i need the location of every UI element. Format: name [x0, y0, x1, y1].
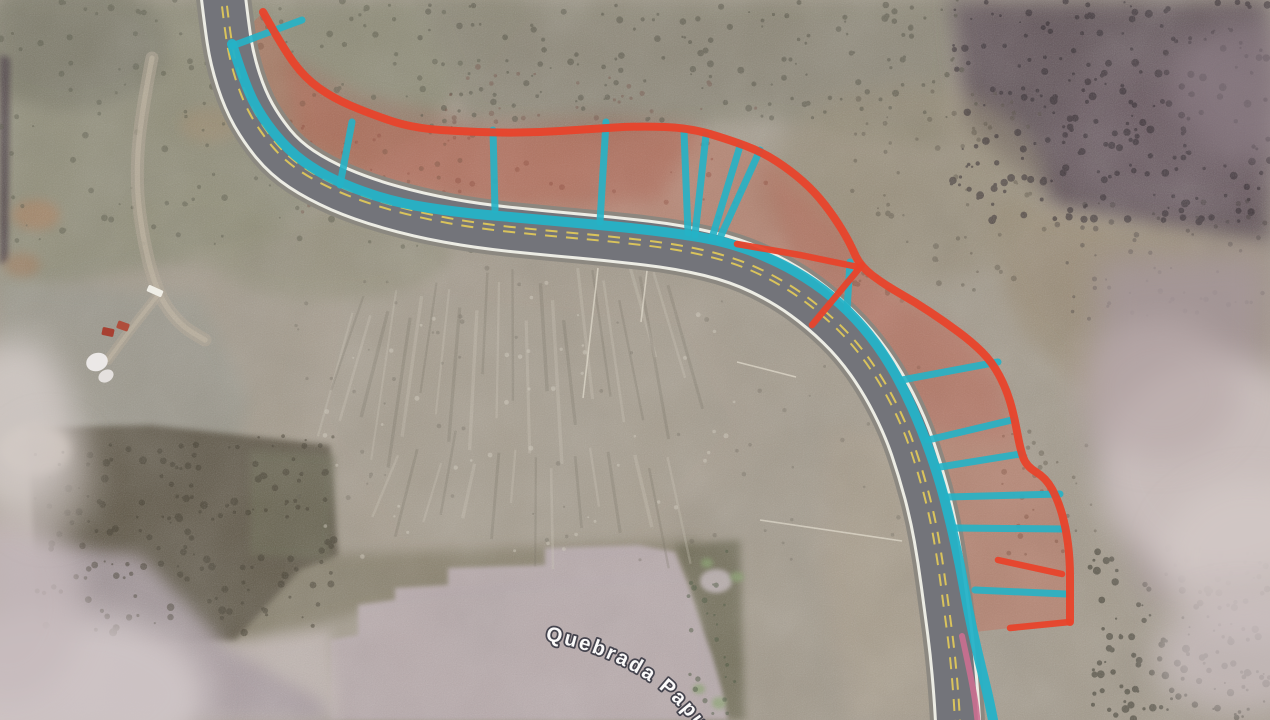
map-canvas[interactable]: Quebrada Papu — [0, 0, 1270, 720]
satellite-map-view[interactable]: Quebrada Papu — [0, 0, 1270, 720]
imagery-noise — [0, 0, 1270, 720]
